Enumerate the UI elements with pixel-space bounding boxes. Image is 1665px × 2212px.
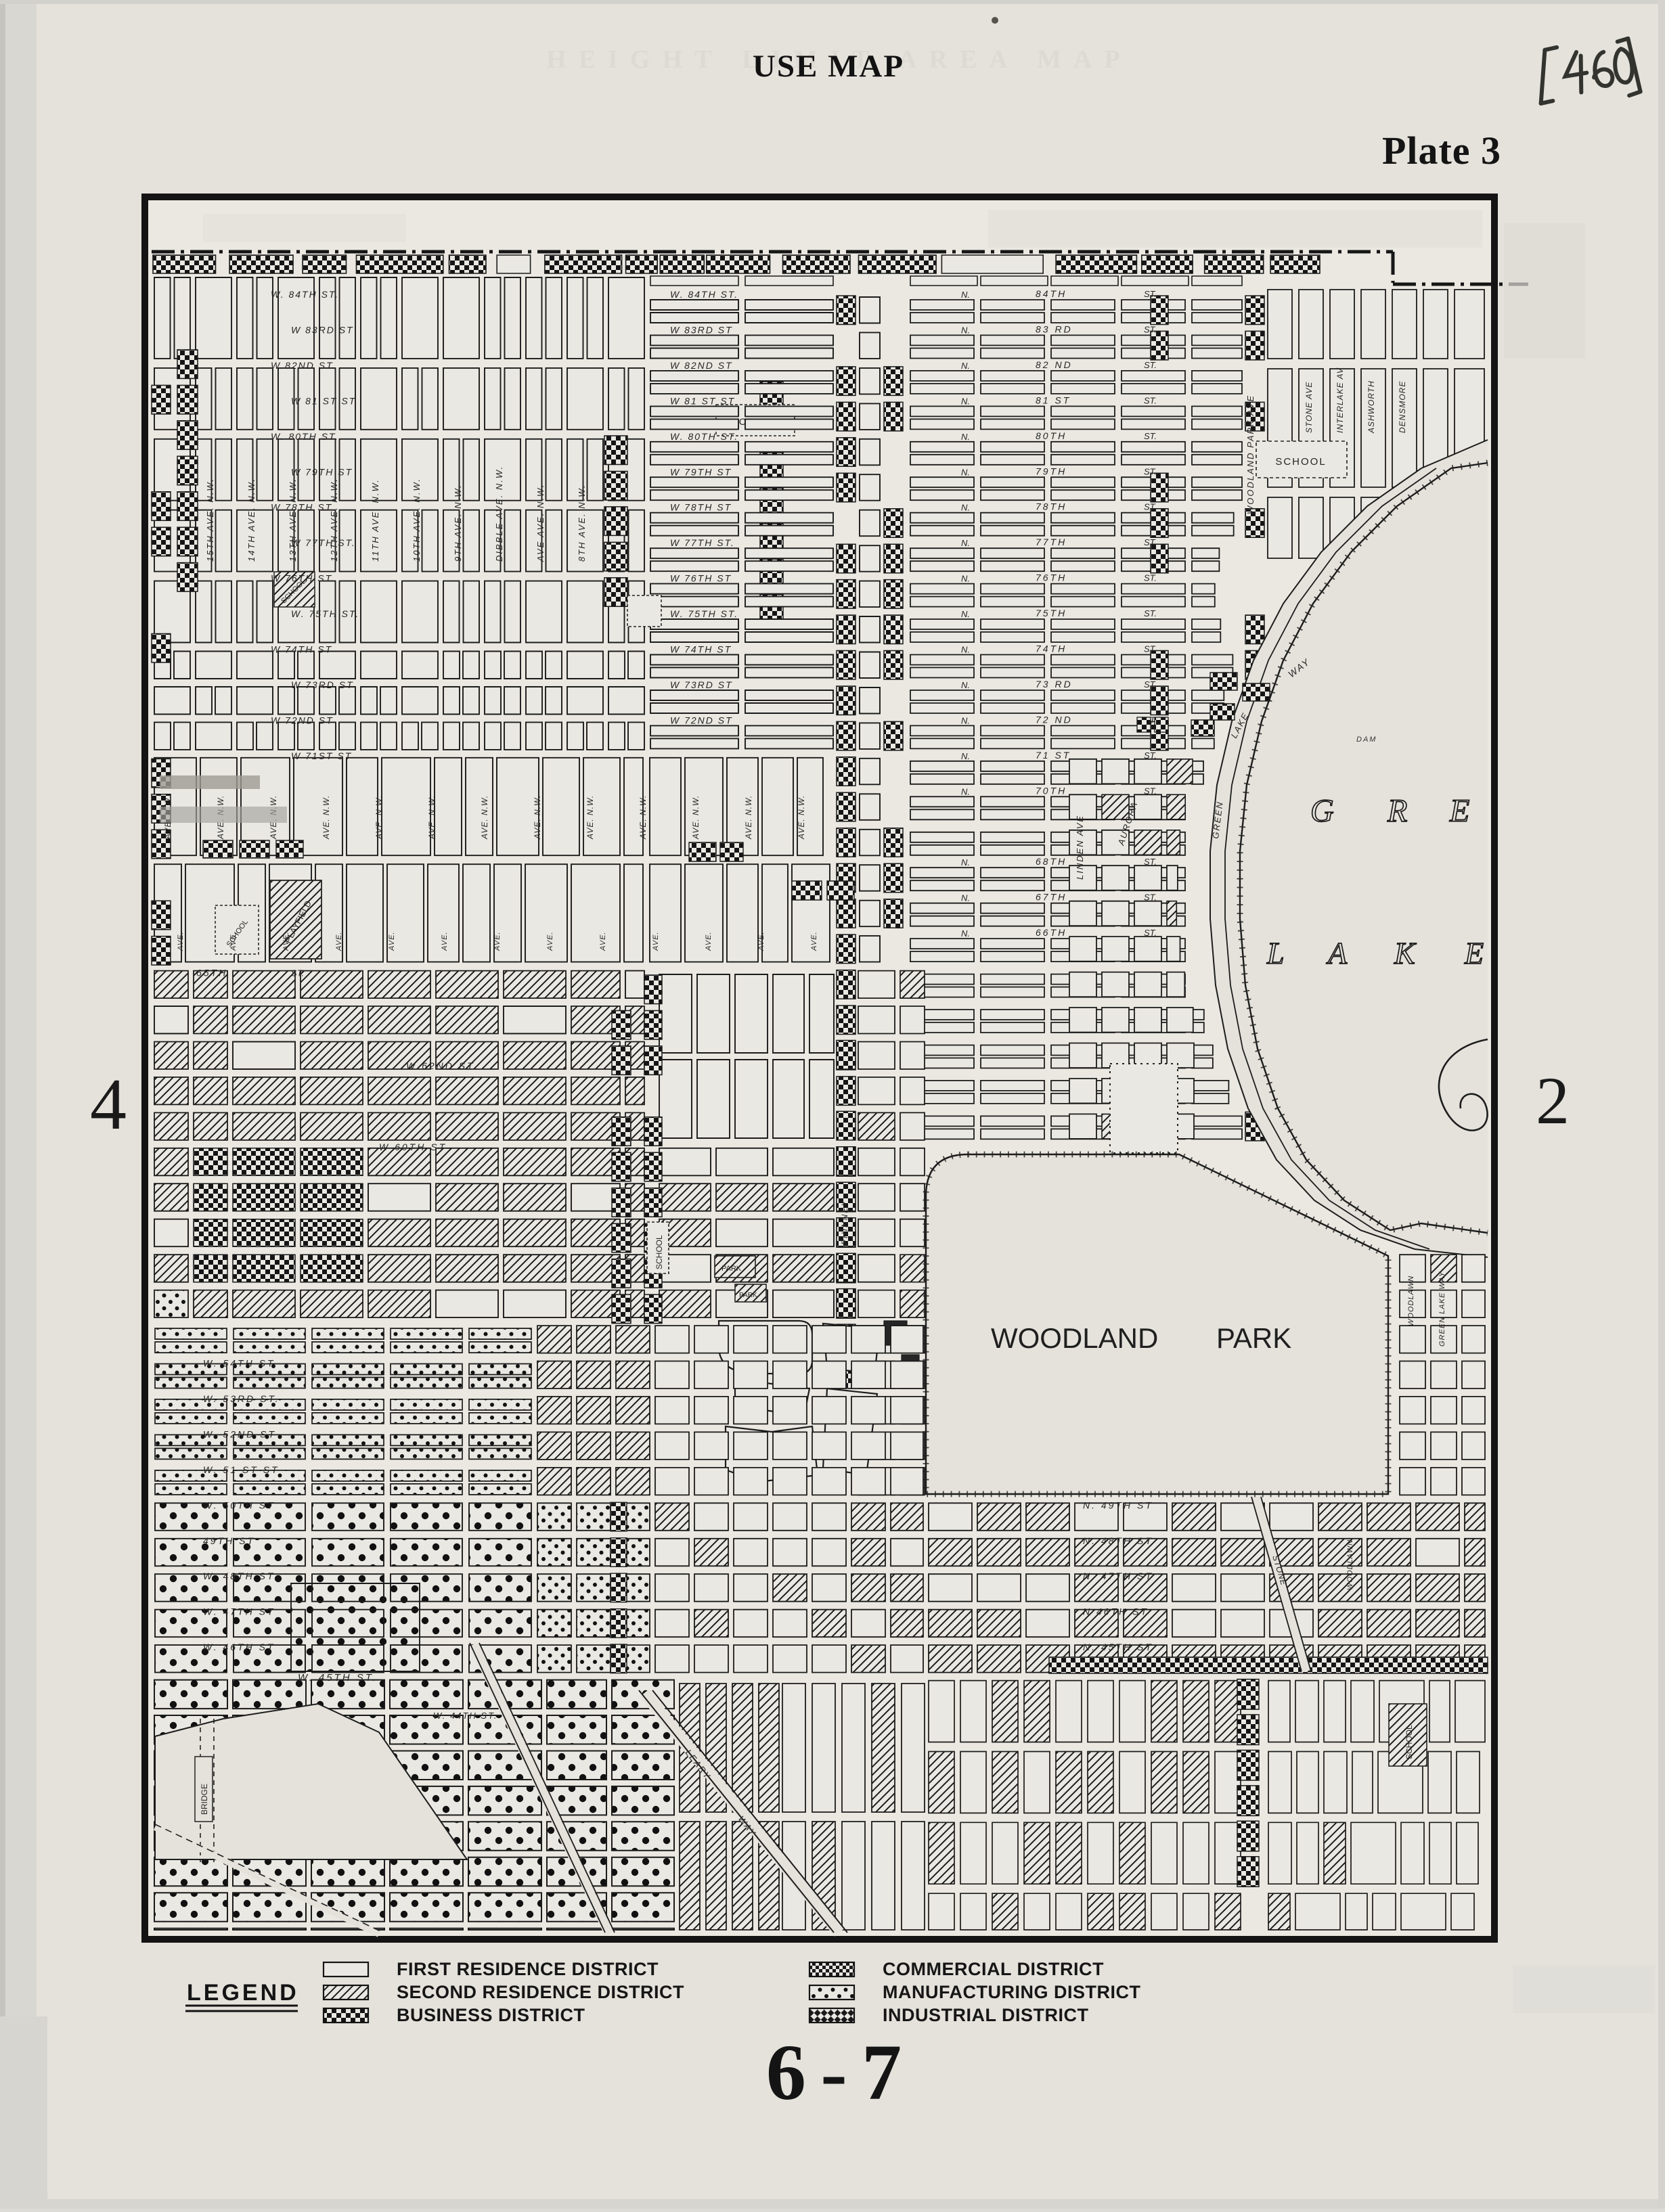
svg-text:N.: N. [961, 645, 970, 655]
svg-text:N.: N. [961, 786, 970, 796]
svg-text:AVE.: AVE. [810, 932, 818, 951]
svg-text:STONE AVE: STONE AVE [1304, 382, 1314, 433]
svg-text:W. 44TH ST.: W. 44TH ST. [433, 1711, 497, 1721]
svg-text:N. 49TH ST: N. 49TH ST [1083, 1499, 1153, 1510]
svg-text:W. 50TH ST: W. 50TH ST [203, 1499, 275, 1510]
svg-text:GREEN LAKE WAY: GREEN LAKE WAY [1438, 1271, 1446, 1347]
svg-text:N.: N. [961, 893, 970, 903]
svg-text:W. 53RD ST.: W. 53RD ST. [203, 1393, 280, 1404]
svg-text:AVE. N.W.: AVE. N.W. [374, 795, 384, 840]
svg-text:N.: N. [961, 325, 970, 335]
svg-text:ASHWORTH: ASHWORTH [1367, 380, 1376, 434]
svg-text:70TH: 70TH [1036, 785, 1067, 796]
svg-text:N. 47TH ST: N. 47TH ST [1083, 1571, 1153, 1581]
svg-text:ST.: ST. [1144, 324, 1157, 334]
svg-text:L: L [1266, 936, 1285, 970]
svg-text:ST.: ST. [1144, 466, 1157, 476]
svg-text:AVE.: AVE. [229, 932, 238, 951]
svg-text:W 82ND ST: W 82ND ST [271, 360, 334, 371]
svg-text:8TH AVE. N.W.: 8TH AVE. N.W. [577, 484, 587, 562]
svg-text:W. 48TH ST: W. 48TH ST [203, 1571, 275, 1581]
svg-text:11TH AVE. N.W.: 11TH AVE. N.W. [370, 478, 380, 562]
svg-text:DAM: DAM [1356, 736, 1377, 744]
svg-text:N.: N. [961, 680, 970, 690]
svg-text:N.: N. [961, 574, 970, 584]
svg-text:W. 51 ST ST: W. 51 ST ST [203, 1464, 280, 1475]
svg-text:AVE.: AVE. [652, 932, 660, 951]
svg-text:PARK: PARK [1216, 1322, 1291, 1354]
svg-text:G: G [1310, 793, 1334, 829]
svg-text:WOODLAND PARK AVE: WOODLAND PARK AVE [1245, 394, 1256, 514]
svg-text:ST.: ST. [1144, 644, 1157, 654]
svg-text:W. 47TH ST: W. 47TH ST [203, 1606, 275, 1617]
svg-text:73 RD: 73 RD [1036, 679, 1073, 690]
svg-text:AVE. N.W.: AVE. N.W. [744, 795, 753, 840]
svg-text:SCHOOL: SCHOOL [654, 1235, 664, 1269]
svg-text:A: A [1326, 936, 1348, 970]
svg-text:N.: N. [961, 432, 970, 442]
svg-text:W 81 ST ST: W 81 ST ST [291, 395, 356, 406]
svg-text:W. 84TH ST.: W. 84TH ST. [670, 289, 738, 300]
svg-text:AVE.: AVE. [757, 932, 765, 951]
svg-text:75TH: 75TH [1036, 608, 1067, 618]
svg-text:79TH: 79TH [1036, 466, 1067, 476]
svg-text:PARK: PARK [739, 1292, 757, 1299]
svg-text:Plate 3: Plate 3 [1382, 129, 1501, 173]
svg-text:R: R [1387, 793, 1407, 829]
svg-text:W 79TH ST: W 79TH ST [291, 466, 353, 477]
svg-text:83 RD: 83 RD [1036, 323, 1073, 334]
svg-text:W 79TH ST: W 79TH ST [670, 466, 732, 477]
svg-text:SCHOOL: SCHOOL [1275, 456, 1326, 468]
svg-text:ST.: ST. [291, 968, 304, 978]
svg-text:W 81 ST ST: W 81 ST ST [670, 395, 735, 406]
svg-text:AVE.: AVE. [705, 932, 713, 951]
svg-text:N. 45TH ST: N. 45TH ST [1083, 1642, 1153, 1652]
svg-text:K: K [1394, 936, 1417, 970]
svg-text:N.: N. [961, 857, 970, 867]
svg-text:AVE.: AVE. [493, 932, 502, 951]
svg-text:W 78TH ST: W 78TH ST [670, 502, 732, 513]
svg-text:W. 75TH ST.: W. 75TH ST. [670, 608, 738, 619]
svg-text:E: E [1449, 793, 1469, 829]
svg-text:AVE.: AVE. [546, 932, 554, 951]
svg-text:W. 80TH ST.: W. 80TH ST. [670, 431, 738, 442]
svg-text:N.: N. [961, 396, 970, 406]
svg-text:N.: N. [961, 503, 970, 513]
svg-text:66TH: 66TH [1036, 927, 1067, 938]
svg-text:AVE. N.W.: AVE. N.W. [321, 795, 331, 840]
svg-text:W 72ND ST: W 72ND ST [670, 715, 733, 725]
svg-text:68TH: 68TH [1036, 856, 1067, 867]
svg-text:LINDEN AVE: LINDEN AVE [1075, 815, 1085, 880]
svg-text:WOODLAND: WOODLAND [991, 1322, 1158, 1354]
svg-text:W. 54TH ST: W. 54TH ST [203, 1358, 275, 1369]
svg-text:W. 75TH ST.: W. 75TH ST. [291, 608, 359, 619]
svg-text:W 76TH ST: W 76TH ST [271, 573, 332, 584]
svg-text:78TH: 78TH [1036, 501, 1067, 512]
svg-text:ST.: ST. [1144, 502, 1157, 512]
svg-text:FIRST RESIDENCE DISTRICT: FIRST RESIDENCE DISTRICT [397, 1959, 659, 1979]
svg-text:MANUFACTURING DISTRICT: MANUFACTURING DISTRICT [883, 1982, 1140, 2002]
svg-text:9TH AVE. N.W.: 9TH AVE. N.W. [453, 484, 463, 562]
svg-text:W. 46TH ST: W. 46TH ST [203, 1642, 275, 1652]
svg-text:76TH: 76TH [1036, 572, 1067, 583]
svg-text:77TH: 77TH [1036, 537, 1067, 547]
svg-text:N. 48TH ST: N. 48TH ST [1083, 1535, 1153, 1546]
svg-text:65TH: 65TH [196, 968, 227, 978]
svg-text:71 ST: 71 ST [1036, 750, 1071, 761]
svg-text:80TH: 80TH [1036, 430, 1067, 441]
svg-text:INTERLAKE AV: INTERLAKE AV [1335, 367, 1345, 433]
svg-text:ST.: ST. [1144, 679, 1157, 690]
svg-text:DENSMORE: DENSMORE [1398, 381, 1407, 433]
svg-text:AVE. N.W.: AVE. N.W. [797, 795, 806, 840]
svg-text:AVE AVE. N.W.: AVE AVE. N.W. [535, 484, 546, 562]
svg-text:BRIDGE: BRIDGE [200, 1784, 209, 1815]
svg-text:COMMERCIAL DISTRICT: COMMERCIAL DISTRICT [883, 1959, 1104, 1979]
svg-text:W 74TH ST: W 74TH ST [670, 644, 732, 655]
svg-text:W. 52ND ST: W. 52ND ST [203, 1428, 276, 1439]
svg-text:AVE.: AVE. [599, 932, 607, 951]
svg-text:4: 4 [90, 1064, 127, 1145]
svg-text:INDUSTRIAL DISTRICT: INDUSTRIAL DISTRICT [883, 2005, 1089, 2025]
svg-text:WOODLAWN: WOODLAWN [1407, 1276, 1415, 1326]
svg-text:N.: N. [961, 928, 970, 939]
svg-text:74TH: 74TH [1036, 644, 1067, 654]
svg-text:AVE. N.W.: AVE. N.W. [638, 795, 648, 840]
svg-text:AVE. N.W.: AVE. N.W. [480, 795, 489, 840]
svg-text:AVE. N.W.: AVE. N.W. [427, 795, 437, 840]
svg-text:82 ND: 82 ND [1036, 359, 1073, 370]
svg-text:ST.: ST. [1144, 573, 1157, 583]
svg-text:W 73RD ST: W 73RD ST [291, 679, 354, 690]
svg-text:LEGEND: LEGEND [187, 1980, 299, 2006]
svg-text:N.: N. [961, 467, 970, 477]
svg-text:ST.: ST. [1144, 431, 1157, 441]
svg-text:13TH AVE. N.W.: 13TH AVE. N.W. [288, 478, 298, 562]
svg-text:ST.: ST. [1144, 537, 1157, 547]
svg-text:N.: N. [961, 361, 970, 371]
svg-text:10TH AVE. N.W.: 10TH AVE. N.W. [412, 478, 422, 562]
svg-text:N.: N. [961, 751, 970, 761]
svg-text:49TH ST: 49TH ST [203, 1535, 255, 1546]
svg-text:ST.: ST. [1144, 289, 1157, 299]
svg-text:2: 2 [1536, 1063, 1570, 1138]
svg-text:N 46TH ST: N 46TH ST [1083, 1606, 1149, 1617]
svg-text:W 83RD ST: W 83RD ST [670, 324, 733, 335]
svg-text:AVE. N.W.: AVE. N.W. [585, 795, 595, 840]
svg-text:W 74TH ST: W 74TH ST [271, 644, 332, 655]
svg-text:BUSINESS DISTRICT: BUSINESS DISTRICT [397, 2005, 585, 2025]
svg-text:AVE. N.W.: AVE. N.W. [691, 795, 701, 840]
svg-text:81 ST: 81 ST [1036, 394, 1071, 405]
svg-text:PHINNEY: PHINNEY [840, 1200, 849, 1245]
svg-text:84TH: 84TH [1036, 288, 1067, 299]
svg-text:W 77TH ST.: W 77TH ST. [291, 537, 356, 548]
svg-text:6 - 7: 6 - 7 [766, 2028, 900, 2117]
svg-text:W 82ND ST: W 82ND ST [670, 360, 733, 371]
svg-text:W 77TH ST.: W 77TH ST. [670, 537, 735, 548]
svg-text:DIBBLE AVE. N.W.: DIBBLE AVE. N.W. [494, 466, 504, 562]
svg-text:N.: N. [961, 290, 970, 300]
svg-text:W 83RD ST: W 83RD ST [291, 324, 354, 335]
svg-text:W. 80TH ST.: W. 80TH ST. [271, 431, 339, 442]
svg-text:ST.: ST. [1144, 360, 1157, 370]
svg-text:AVE.: AVE. [388, 932, 396, 951]
svg-text:67TH: 67TH [1036, 892, 1067, 903]
svg-text:WOODLAWN: WOODLAWN [1346, 1539, 1354, 1590]
svg-text:12TH AVE. N.W.: 12TH AVE. N.W. [329, 478, 339, 562]
svg-text:W. 45TH ST.: W. 45TH ST. [298, 1672, 378, 1684]
svg-text:W 72ND ST: W 72ND ST [271, 715, 334, 725]
svg-text:15TH AVE. N.W.: 15TH AVE. N.W. [205, 478, 215, 562]
svg-text:W 73RD ST: W 73RD ST [670, 679, 733, 690]
svg-text:ST.: ST. [1144, 608, 1157, 618]
svg-text:AVE.: AVE. [441, 932, 449, 951]
svg-text:AVE.: AVE. [177, 932, 185, 951]
svg-text:SECOND RESIDENCE DISTRICT: SECOND RESIDENCE DISTRICT [397, 1982, 684, 2002]
svg-text:N.: N. [961, 538, 970, 548]
svg-text:AVE. N.W.: AVE. N.W. [533, 795, 542, 840]
svg-text:W 62ND ST: W 62ND ST [406, 1060, 475, 1071]
svg-text:SCHOOL: SCHOOL [1404, 1725, 1414, 1759]
svg-text:W 60TH ST: W 60TH ST [379, 1142, 447, 1152]
svg-text:14TH AVE. N.W.: 14TH AVE. N.W. [246, 478, 257, 562]
svg-text:N.: N. [961, 609, 970, 619]
svg-text:W 76TH ST: W 76TH ST [670, 573, 732, 584]
svg-text:W 78TH ST: W 78TH ST [271, 502, 332, 513]
svg-text:AVE.: AVE. [282, 932, 290, 951]
svg-text:AVE.: AVE. [335, 932, 343, 951]
svg-text:PARK: PARK [721, 1265, 742, 1273]
svg-text:W. 84TH ST.: W. 84TH ST. [271, 289, 339, 300]
svg-text:E: E [1464, 936, 1484, 970]
svg-text:USE MAP: USE MAP [753, 49, 904, 84]
svg-text:ST.: ST. [1144, 395, 1157, 405]
svg-text:W 71ST ST: W 71ST ST [291, 750, 352, 761]
svg-text:N.: N. [961, 715, 970, 725]
svg-text:72 ND: 72 ND [1036, 714, 1073, 725]
